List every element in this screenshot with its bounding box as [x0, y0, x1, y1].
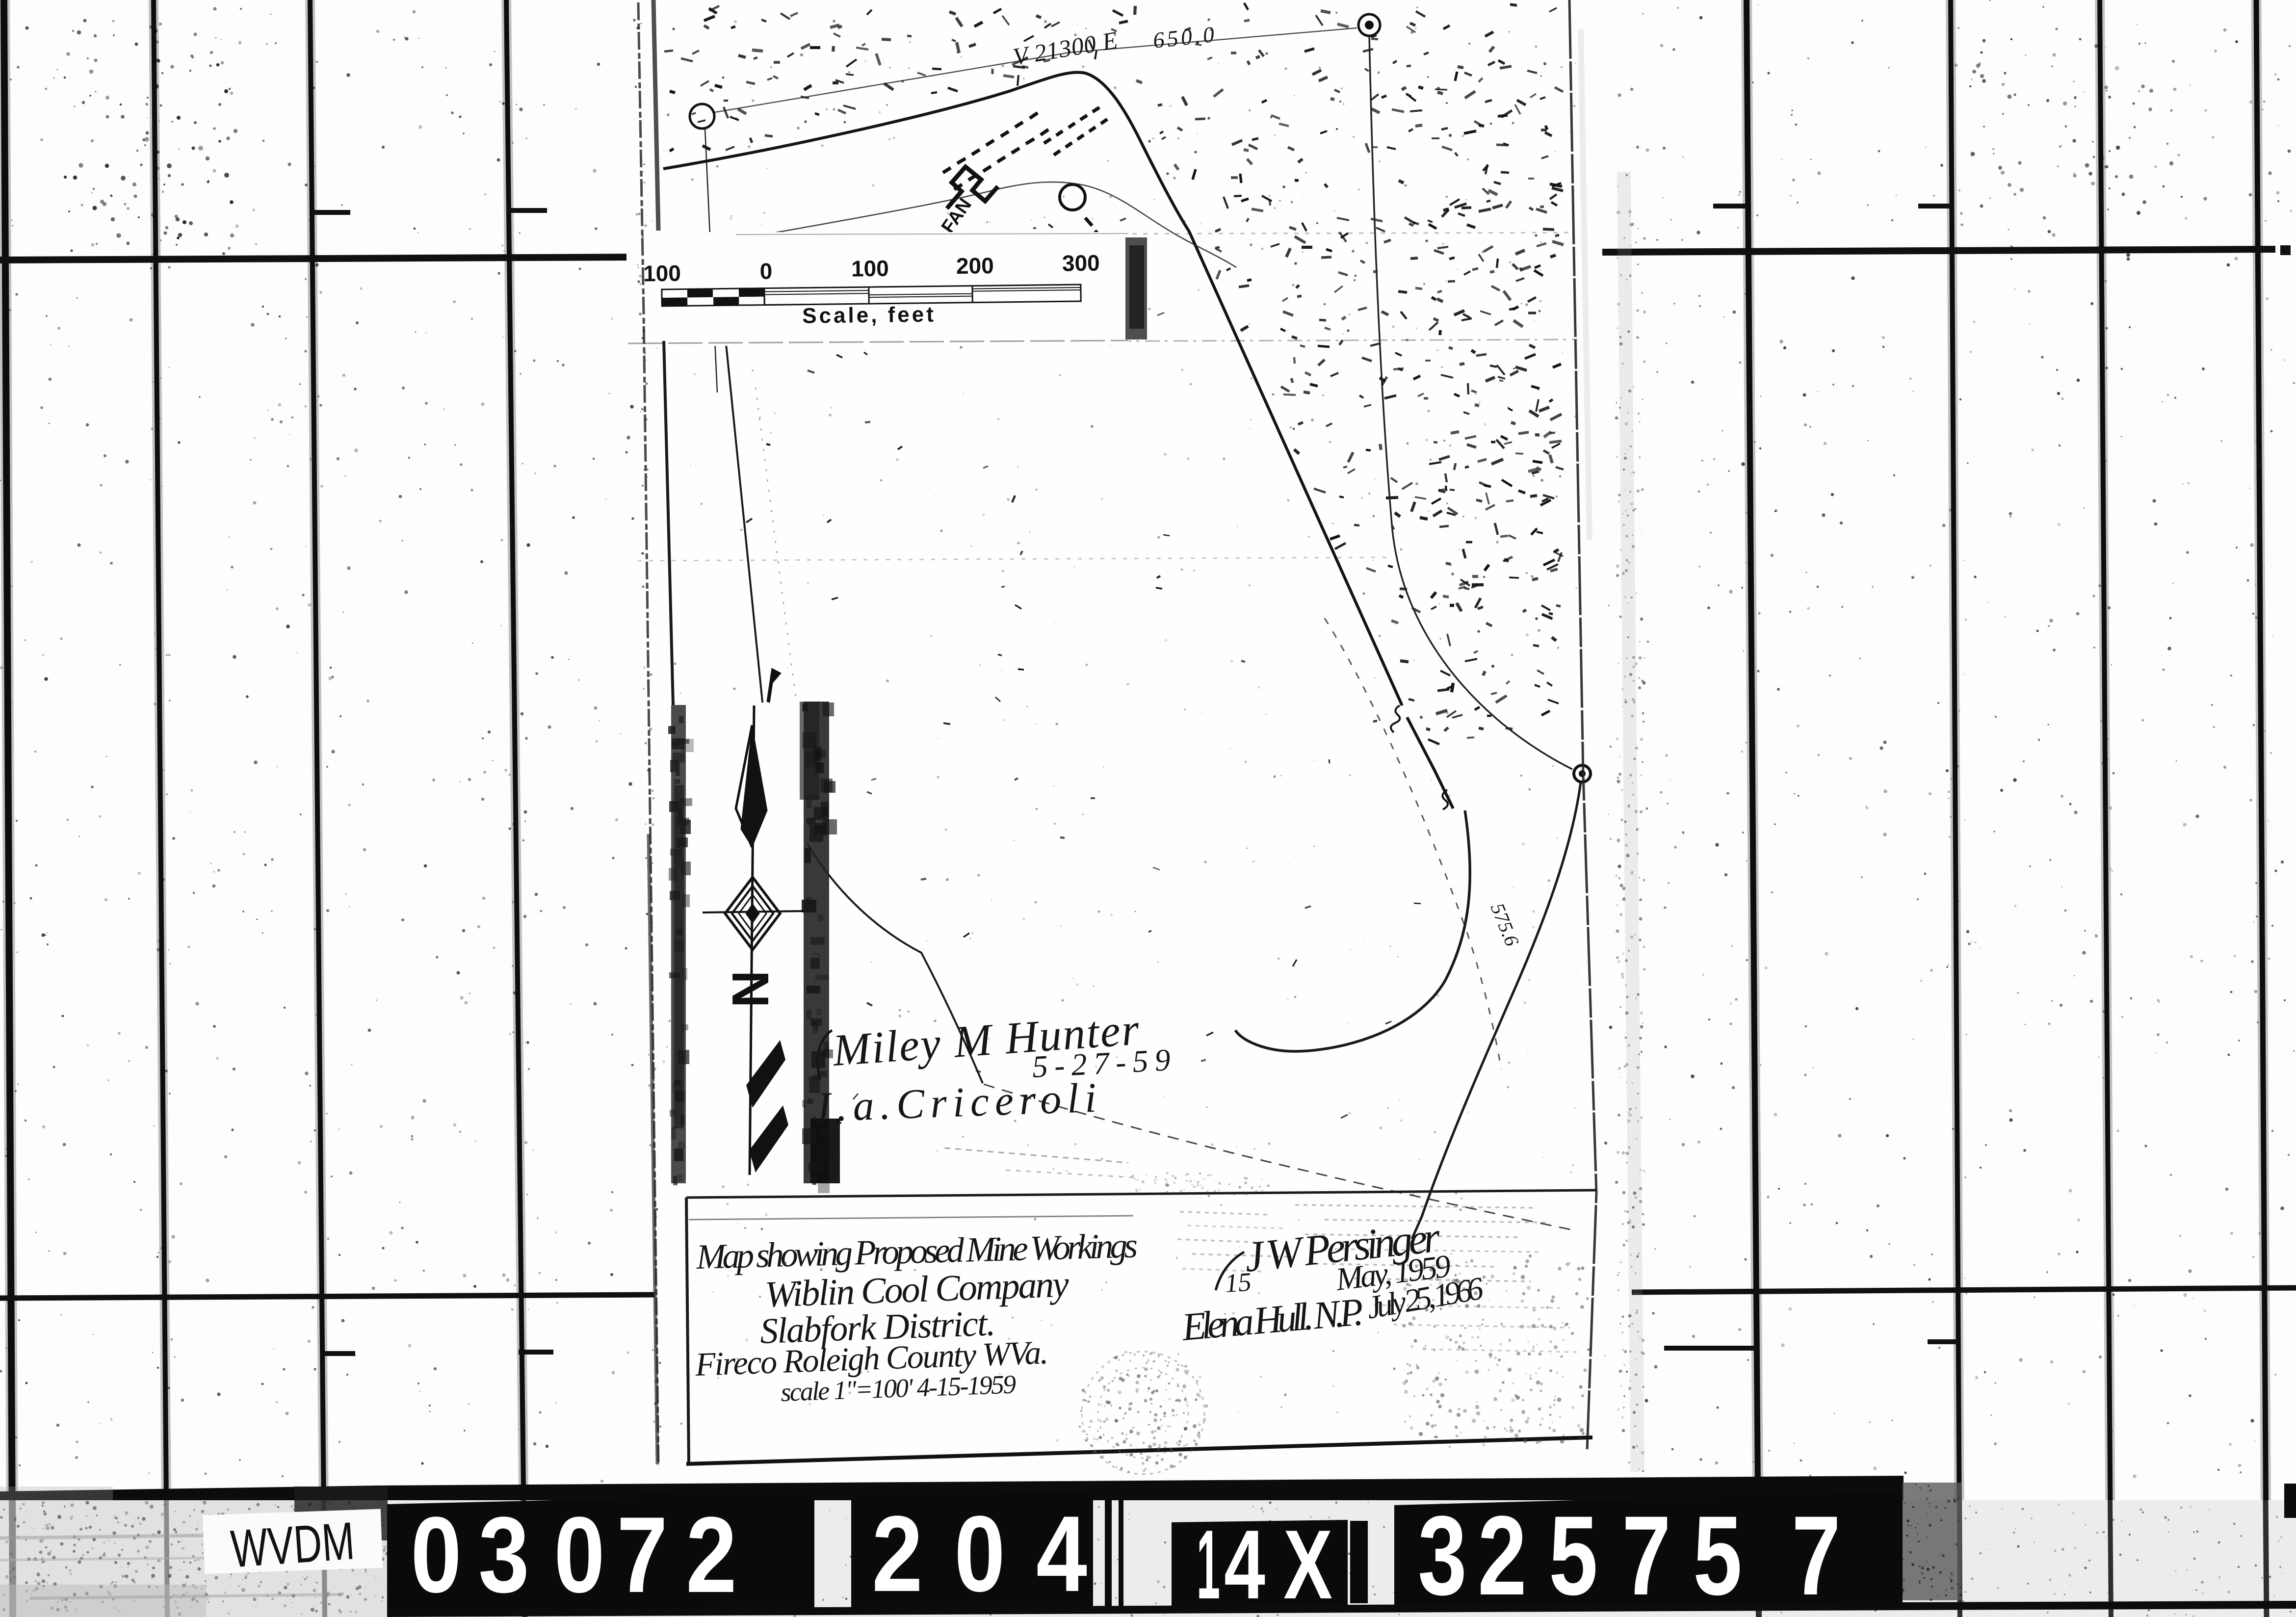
- svg-text:7: 7: [1622, 1492, 1671, 1617]
- svg-text:4: 4: [1224, 1510, 1265, 1617]
- svg-text:3: 3: [478, 1494, 529, 1615]
- svg-text:0: 0: [759, 258, 772, 284]
- svg-text:1: 1: [1197, 1510, 1220, 1617]
- svg-text:0: 0: [554, 1494, 605, 1615]
- svg-text:J.a.Criceroli: J.a.Criceroli: [811, 1074, 1097, 1131]
- svg-text:2: 2: [686, 1494, 737, 1615]
- svg-text:4: 4: [1036, 1493, 1087, 1614]
- svg-text:100: 100: [851, 256, 889, 282]
- svg-text:5: 5: [1693, 1492, 1742, 1617]
- svg-text:Scale, feet: Scale, feet: [802, 302, 936, 328]
- svg-text:3: 3: [1418, 1492, 1467, 1617]
- svg-text:N: N: [722, 970, 780, 1008]
- svg-text:300: 300: [1062, 250, 1100, 276]
- svg-text:100: 100: [643, 261, 681, 287]
- svg-text:2: 2: [872, 1493, 923, 1614]
- svg-text:5: 5: [1549, 1492, 1598, 1617]
- svg-text:7: 7: [617, 1494, 668, 1615]
- svg-text:0: 0: [411, 1494, 462, 1615]
- svg-text:X: X: [1283, 1510, 1332, 1617]
- svg-text:0: 0: [954, 1493, 1005, 1614]
- svg-text:7: 7: [1792, 1492, 1841, 1617]
- svg-text:15: 15: [1224, 1267, 1252, 1298]
- svg-text:WVDM: WVDM: [229, 1511, 357, 1578]
- svg-text:2: 2: [1478, 1492, 1527, 1617]
- svg-text:200: 200: [956, 253, 994, 279]
